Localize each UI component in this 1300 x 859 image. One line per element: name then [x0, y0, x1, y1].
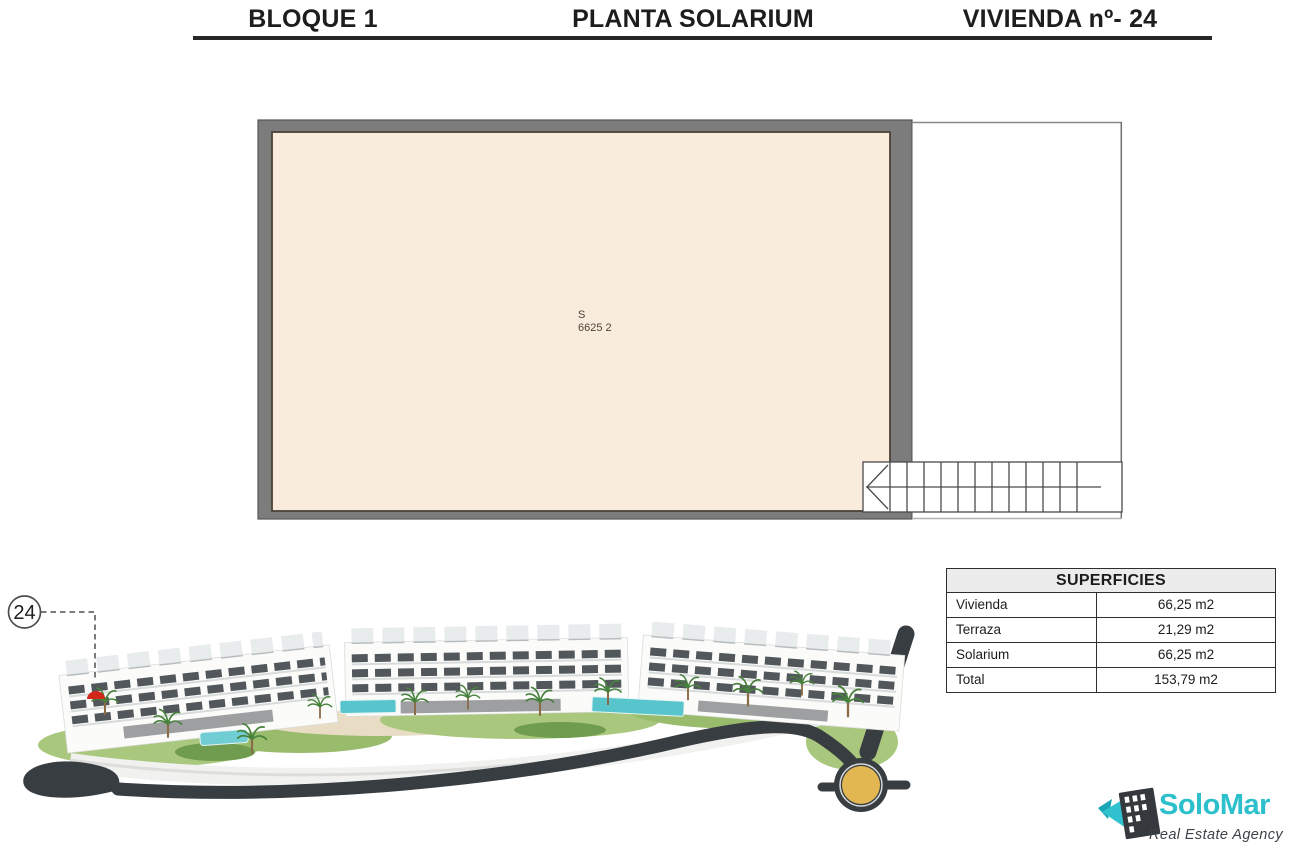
- header-floor-label: PLANTA SOLARIUM: [572, 5, 814, 34]
- row-label: Terraza: [947, 618, 1097, 642]
- row-value: 66,25 m2: [1097, 593, 1275, 617]
- staircase-icon: [863, 462, 1122, 512]
- table-row: Total 153,79 m2: [947, 667, 1275, 692]
- table-row: Solarium 66,25 m2: [947, 642, 1275, 667]
- table-row: Vivienda 66,25 m2: [947, 593, 1275, 617]
- surfaces-table: SUPERFICIES Vivienda 66,25 m2 Terraza 21…: [946, 568, 1276, 693]
- site-render-illustration: [23, 628, 906, 812]
- room-area: 6625 2: [578, 322, 612, 335]
- row-value: 66,25 m2: [1097, 643, 1275, 667]
- callout-unit-number: 24: [13, 602, 35, 624]
- header-rule: [193, 36, 1212, 40]
- row-label: Total: [947, 668, 1097, 692]
- row-label: Solarium: [947, 643, 1097, 667]
- row-value: 153,79 m2: [1097, 668, 1275, 692]
- page-drawing: 24: [0, 0, 1300, 859]
- table-row: Terraza 21,29 m2: [947, 617, 1275, 642]
- room-label: S 6625 2: [578, 309, 612, 334]
- room-code: S: [578, 309, 612, 322]
- agency-brand-name: SoloMar: [1159, 789, 1270, 822]
- agency-tagline: Real Estate Agency: [1149, 827, 1283, 843]
- header-unit-label: VIVIENDA nº- 24: [963, 5, 1158, 34]
- row-label: Vivienda: [947, 593, 1097, 617]
- plan-annex-area: [912, 122, 1122, 519]
- surfaces-table-title: SUPERFICIES: [947, 569, 1275, 593]
- row-value: 21,29 m2: [1097, 618, 1275, 642]
- header-block-label: BLOQUE 1: [248, 5, 377, 34]
- floor-plan: [258, 120, 1122, 519]
